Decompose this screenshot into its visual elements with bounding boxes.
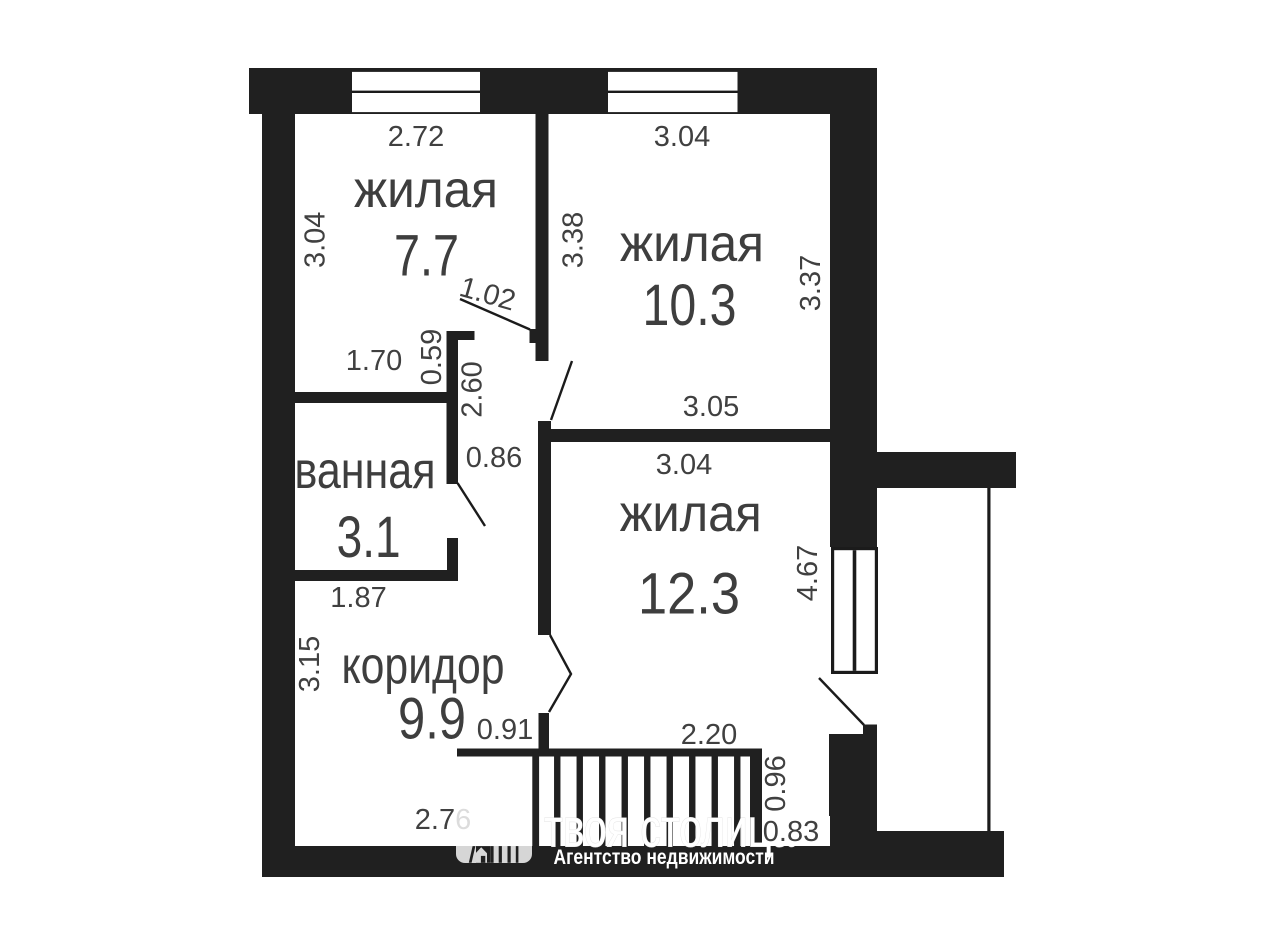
svg-text:жилая: жилая xyxy=(620,215,764,273)
svg-text:3.37: 3.37 xyxy=(795,255,827,311)
svg-text:1.70: 1.70 xyxy=(346,345,402,377)
svg-text:2.20: 2.20 xyxy=(681,719,737,751)
svg-text:12.3: 12.3 xyxy=(638,562,740,627)
svg-text:3.04: 3.04 xyxy=(299,212,331,268)
svg-text:4.67: 4.67 xyxy=(792,545,824,601)
svg-text:0.59: 0.59 xyxy=(416,329,448,385)
svg-text:9.9: 9.9 xyxy=(398,687,466,752)
svg-text:7.7: 7.7 xyxy=(394,224,459,289)
svg-text:ванная: ванная xyxy=(295,442,436,500)
svg-text:0.91: 0.91 xyxy=(477,714,533,746)
svg-text:10.3: 10.3 xyxy=(643,273,737,338)
svg-text:3.05: 3.05 xyxy=(683,391,739,423)
svg-text:Агентство недвижимости: Агентство недвижимости xyxy=(554,845,775,869)
svg-text:0.96: 0.96 xyxy=(760,755,792,811)
svg-text:3.04: 3.04 xyxy=(654,121,710,153)
svg-text:2.60: 2.60 xyxy=(457,361,489,417)
svg-text:3.04: 3.04 xyxy=(656,449,712,481)
svg-text:жилая: жилая xyxy=(620,485,762,543)
svg-text:0.86: 0.86 xyxy=(466,442,522,474)
svg-text:2.72: 2.72 xyxy=(388,121,444,153)
svg-text:0.83: 0.83 xyxy=(763,816,819,848)
svg-text:3.1: 3.1 xyxy=(337,505,401,570)
svg-text:1.87: 1.87 xyxy=(330,582,386,614)
svg-text:жилая: жилая xyxy=(354,161,498,219)
svg-text:3.15: 3.15 xyxy=(294,636,326,692)
svg-text:3.38: 3.38 xyxy=(557,212,589,268)
